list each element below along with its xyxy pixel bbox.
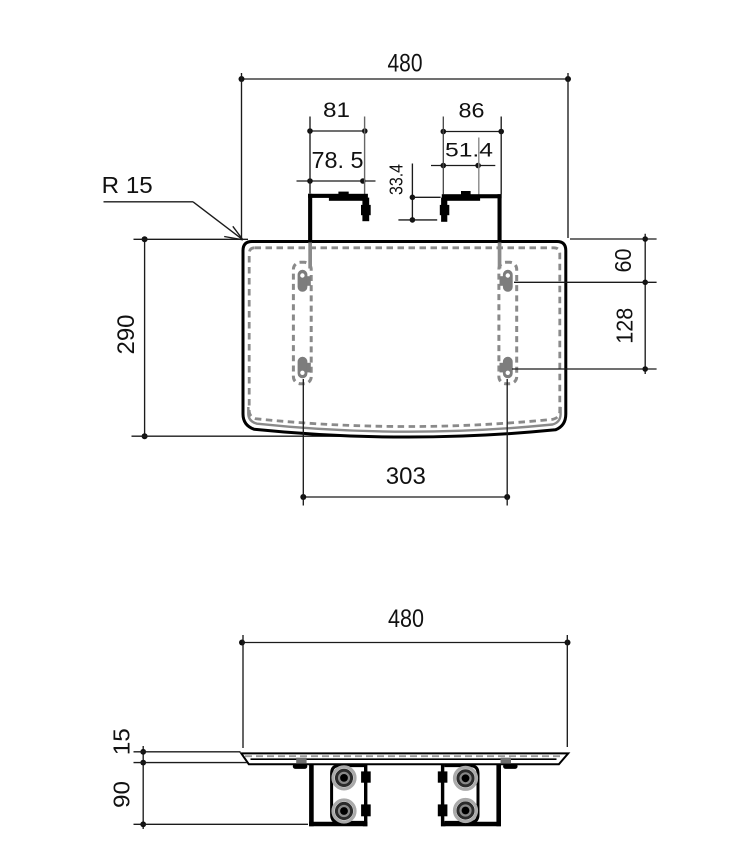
svg-text:51.4: 51.4 [445,141,494,162]
svg-text:R 15: R 15 [102,172,153,198]
svg-text:15: 15 [108,728,134,755]
svg-text:480: 480 [388,605,424,633]
svg-text:86: 86 [459,99,485,123]
svg-text:303: 303 [386,463,426,490]
svg-text:78. 5: 78. 5 [312,147,364,173]
svg-text:290: 290 [113,315,140,355]
svg-text:60: 60 [610,249,636,273]
svg-text:90: 90 [108,781,134,808]
svg-text:33.4: 33.4 [386,164,407,195]
svg-text:128: 128 [612,308,638,344]
svg-text:480: 480 [388,50,423,78]
svg-text:81: 81 [323,98,350,122]
